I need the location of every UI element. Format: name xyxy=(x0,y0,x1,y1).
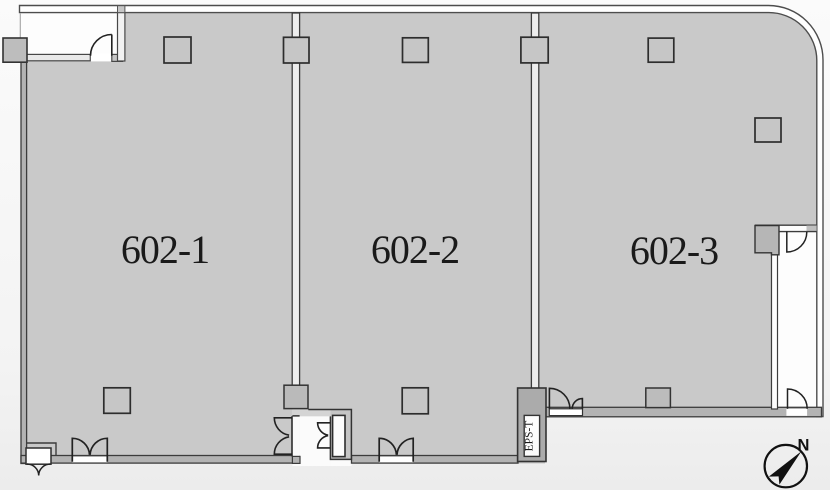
svg-text:N: N xyxy=(798,436,810,454)
svg-text:EPS-T: EPS-T xyxy=(524,421,536,452)
svg-text:602-3: 602-3 xyxy=(630,228,718,273)
svg-text:602-2: 602-2 xyxy=(371,227,459,272)
svg-text:602-1: 602-1 xyxy=(121,227,209,272)
